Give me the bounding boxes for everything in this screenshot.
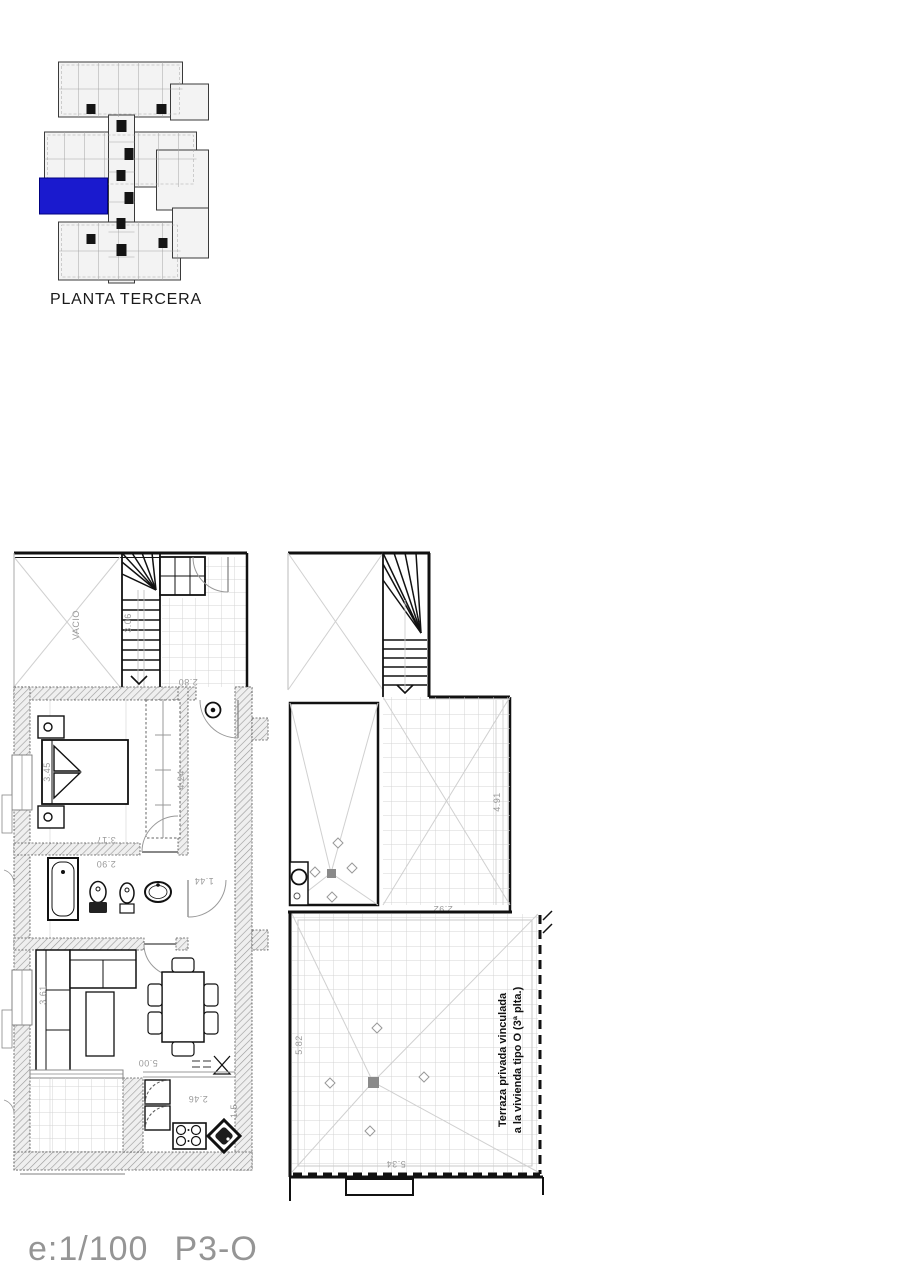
sheet-footer: e:1/100 P3-O (28, 1230, 258, 1269)
key-plan: PLANTA TERCERA (36, 52, 216, 312)
selected-unit-highlight (40, 178, 108, 214)
living-room: 5.00 3.61 (36, 950, 230, 1074)
dim-bathroom: 2.90 (96, 859, 116, 869)
drain-point (327, 869, 336, 878)
terrace-note-line1: Terraza privada vinculada (497, 992, 509, 1127)
dim-living-length: 5.00 (138, 1058, 158, 1068)
bidet (120, 883, 134, 903)
plan-sheet: PLANTA TERCERA (0, 0, 905, 1280)
outer-parapet (290, 1177, 543, 1201)
toilet-tank (89, 902, 107, 913)
kitchen: 2.46 1.5 (143, 1072, 240, 1152)
scale-label: e:1/100 (28, 1230, 148, 1269)
dim-wardrobe: 4.24 (176, 770, 186, 790)
dim-terrace-length: 5.34 (386, 1159, 406, 1169)
dining-table (162, 972, 204, 1042)
building-outline (40, 62, 209, 283)
main-floor-plan: VACIO 3.06 (0, 540, 905, 1240)
dim-bedroom-width: 3.45 (42, 762, 52, 782)
stair-direction-arrow (131, 676, 147, 684)
drain-point (368, 1077, 379, 1088)
winder-treads (383, 553, 421, 633)
key-plan-title: PLANTA TERCERA (36, 291, 216, 309)
bedroom: 3.45 4.24 3.17 (38, 700, 186, 852)
dim-bedroom-length: 3.17 (96, 835, 116, 845)
dim-hall: 1.44 (194, 876, 214, 886)
dim-kitchen-length: 2.46 (188, 1094, 208, 1104)
terrace-note-line2: a la vivienda tipo O (3ª plta.) (512, 986, 524, 1133)
coffee-table (86, 992, 114, 1056)
dim-terrace-width: 5.82 (294, 1035, 304, 1055)
dim-landing: 2.80 (178, 677, 198, 687)
dim-living-width: 3.61 (38, 985, 48, 1005)
stair-left: 3.06 (122, 553, 160, 687)
ceiling-lamp-dot (211, 708, 216, 713)
dim-upper-terrace-length: 4.91 (492, 792, 502, 812)
plan-code: P3-O (174, 1230, 257, 1269)
window-symbol (192, 1056, 230, 1074)
winder-treads (122, 553, 156, 590)
toilet (90, 882, 106, 903)
sofa (36, 950, 70, 1072)
stair-landing: 2.80 (160, 553, 247, 687)
dim-kitchen-width: 1.5 (229, 1104, 239, 1118)
straight-treads (122, 600, 160, 670)
hallway: 1.44 (188, 700, 238, 917)
key-plan-drawing (36, 52, 216, 297)
upper-terrace: 4.91 2.92 (383, 697, 510, 914)
dwelling-level: VACIO 3.06 (2, 553, 268, 1174)
roof-terrace-level: 4.91 2.92 (288, 553, 552, 1201)
void-label: VACIO (71, 610, 81, 640)
bathroom-door-swing (144, 944, 176, 976)
roof-room (290, 703, 378, 905)
dim-stair: 3.06 (123, 613, 133, 633)
bidet-base (120, 904, 134, 913)
private-terrace: 5.82 5.34 Terraza privada vinculada a la… (288, 911, 552, 1201)
